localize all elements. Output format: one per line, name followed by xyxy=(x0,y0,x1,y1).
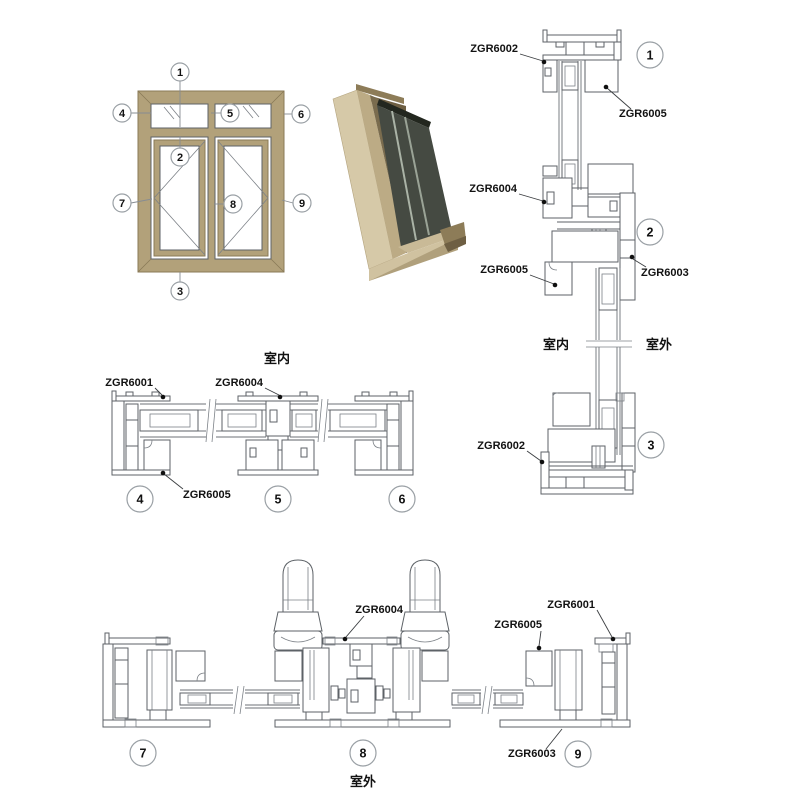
window-profile-diagram: 1 2 3 4 5 xyxy=(0,0,800,800)
window-handle-left xyxy=(274,560,322,650)
thermal-break xyxy=(566,477,584,488)
label-zgr6002-sill: ZGR6002 xyxy=(477,440,525,452)
sill-section xyxy=(541,393,635,494)
svg-text:4: 4 xyxy=(137,493,144,507)
thermal-break xyxy=(566,42,584,55)
sash-profile xyxy=(555,650,582,710)
label-zgr6001-mid: ZGR6001 xyxy=(105,377,153,389)
svg-text:8: 8 xyxy=(360,747,367,761)
glass-spacer xyxy=(140,410,198,431)
sash-glass-horizontal-right xyxy=(452,686,523,714)
label-zgr6003-bottom: ZGR6003 xyxy=(508,748,556,760)
svg-text:1: 1 xyxy=(647,49,654,63)
svg-text:6: 6 xyxy=(298,109,304,121)
glazing-bead xyxy=(422,651,448,681)
svg-text:9: 9 xyxy=(299,198,305,210)
callout-detail-2: 2 xyxy=(637,219,663,245)
fixed-lite-left xyxy=(151,104,208,128)
glazing-bead xyxy=(275,651,302,681)
label-zgr6005-transom: ZGR6005 xyxy=(480,264,528,276)
sash-profile xyxy=(147,650,172,710)
sash-top-profile xyxy=(552,231,618,262)
svg-text:4: 4 xyxy=(119,108,126,120)
sash-profile xyxy=(303,648,329,712)
glazing-bead xyxy=(585,60,618,92)
casement-sash-right xyxy=(218,140,268,256)
label-zgr6001-bottom: ZGR6001 xyxy=(547,599,595,611)
zone-label-indoor-mid: 室内 xyxy=(264,351,290,367)
svg-text:7: 7 xyxy=(140,747,147,761)
svg-text:8: 8 xyxy=(230,199,236,211)
svg-text:3: 3 xyxy=(648,439,655,453)
diagram-svg: 1 2 3 4 5 xyxy=(0,0,800,800)
glazing-bead xyxy=(553,393,590,426)
break-lines xyxy=(206,399,216,442)
label-zgr6005-head: ZGR6005 xyxy=(619,108,667,120)
jamb-section-bottom-right xyxy=(500,633,630,727)
label-zgr6004-bottom: ZGR6004 xyxy=(355,604,404,616)
svg-text:3: 3 xyxy=(177,286,183,298)
callout-detail-8: 8 xyxy=(350,740,376,766)
zone-label-indoor-vertical: 室内 xyxy=(543,337,569,353)
mullion-section-bottom xyxy=(275,637,450,727)
outer-frame-face xyxy=(622,393,635,472)
jamb-section-bottom-left xyxy=(103,633,210,727)
callout-6-elevation: 6 xyxy=(284,105,310,123)
svg-text:6: 6 xyxy=(399,493,406,507)
sill-bottom-flange xyxy=(541,488,633,494)
callout-detail-1: 1 xyxy=(637,42,663,68)
thermal-break xyxy=(572,188,588,206)
break-lines xyxy=(234,686,244,714)
zone-label-outdoor-bottom: 室外 xyxy=(350,774,376,790)
elevation-drawing: 1 2 3 4 5 xyxy=(113,63,311,300)
head-frame-section xyxy=(543,30,621,92)
callout-detail-5: 5 xyxy=(265,486,291,512)
label-zgr6005-bottom: ZGR6005 xyxy=(494,619,542,631)
glazing-bead xyxy=(144,440,170,471)
glazing-bead xyxy=(545,262,572,295)
callout-detail-4: 4 xyxy=(127,486,153,512)
svg-text:1: 1 xyxy=(177,67,183,79)
callout-detail-3: 3 xyxy=(638,432,664,458)
horizontal-section-mid: 室内 ZGR6001 ZGR6004 ZGR6005 4 5 6 xyxy=(105,351,415,512)
svg-text:2: 2 xyxy=(177,152,183,164)
window-handle-right xyxy=(401,560,449,650)
callout-detail-6: 6 xyxy=(389,486,415,512)
break-lines xyxy=(482,686,492,714)
glazing-bead xyxy=(355,440,381,471)
outer-frame-face xyxy=(620,193,635,300)
callout-9-elevation: 9 xyxy=(282,194,311,212)
label-zgr6004-mid: ZGR6004 xyxy=(215,377,264,389)
glass-spacer xyxy=(330,410,385,431)
transom-section xyxy=(543,164,635,300)
thermal-break xyxy=(357,666,372,678)
vertical-section: 室内 室外 ZGR6002 ZGR6005 ZGR6004 ZGR6005 ZG… xyxy=(469,30,688,494)
fixed-glass-horizontal xyxy=(140,399,387,442)
callout-3-elevation: 3 xyxy=(171,272,189,300)
label-zgr6004-transom: ZGR6004 xyxy=(469,183,518,195)
glazing-bead xyxy=(176,651,205,681)
label-zgr6002-head: ZGR6002 xyxy=(470,43,518,55)
svg-text:7: 7 xyxy=(119,198,125,210)
svg-text:5: 5 xyxy=(227,108,233,120)
sash-profile xyxy=(393,648,420,712)
break-lines xyxy=(318,399,328,442)
callout-detail-9: 9 xyxy=(565,741,591,767)
zone-label-outdoor-vertical: 室外 xyxy=(646,337,672,353)
sash-glass-horizontal-left xyxy=(180,686,300,714)
svg-text:2: 2 xyxy=(647,226,654,240)
glazing-bead xyxy=(526,651,552,686)
profile-3d-render xyxy=(333,84,466,281)
horizontal-section-bottom: ZGR6004 ZGR6001 ZGR6005 ZGR6003 室外 7 8 9 xyxy=(103,560,630,790)
svg-text:5: 5 xyxy=(275,493,282,507)
label-zgr6005-mid: ZGR6005 xyxy=(183,489,231,501)
label-zgr6003-transom: ZGR6003 xyxy=(641,267,689,279)
callout-detail-7: 7 xyxy=(130,740,156,766)
svg-text:9: 9 xyxy=(575,748,582,762)
fixed-glass-vertical xyxy=(559,61,581,190)
